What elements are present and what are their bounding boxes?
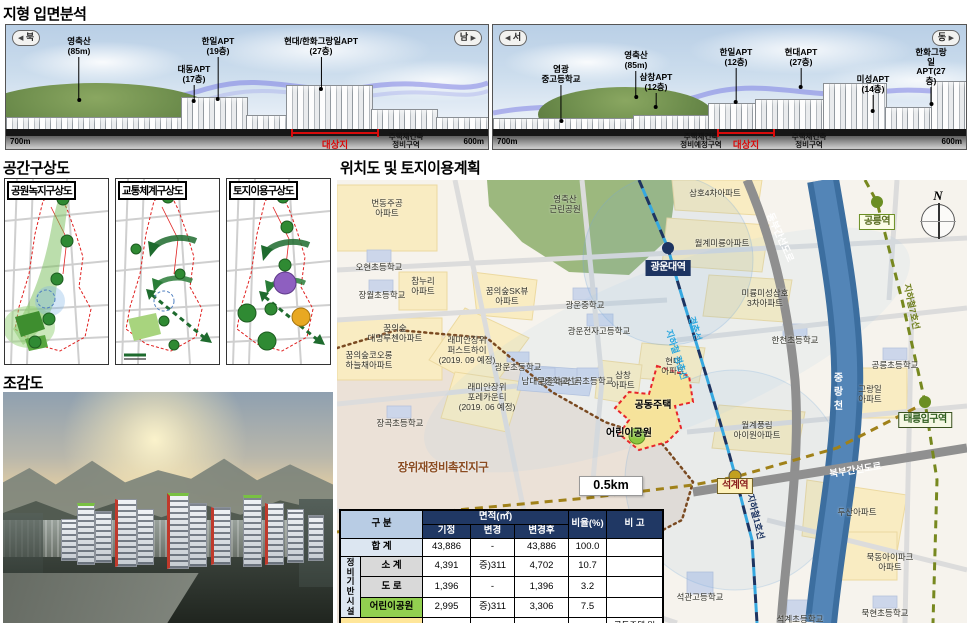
cell	[607, 577, 663, 598]
birdseye-render	[3, 392, 333, 623]
elevation-panel-north-south: ◀ 북 남 ▶ 영축산 (85m) 대동APT (17층) 한일APT (19층…	[5, 24, 489, 150]
cell: -	[471, 577, 515, 598]
cell	[607, 597, 663, 618]
map-label: 장월초등학교	[359, 290, 406, 300]
concept-map-title: 토지이용구상도	[229, 181, 298, 200]
callout-mountain: 영축산 (85m)	[67, 37, 90, 100]
compass-pill-east: 동 ▶	[932, 30, 960, 46]
park-label: 어린이공원	[606, 428, 652, 440]
dark-building	[3, 513, 43, 573]
map-label: 꿈의숲 대명루첸아파트	[368, 323, 423, 343]
concept-map-park-green: 공원녹지구상도	[4, 178, 109, 365]
building-row	[885, 107, 933, 130]
map-label: 번동주공 아파트	[371, 198, 402, 218]
map-label: 장곡초등학교	[377, 418, 424, 428]
concept-map-title: 교통체계구상도	[118, 181, 187, 200]
site-label: 대상지	[322, 137, 348, 150]
building-row	[755, 99, 825, 130]
zone-label: 주택재건축 정비구역	[389, 133, 424, 150]
site-label: 공동주택	[635, 400, 672, 412]
site-bracket	[717, 132, 775, 134]
arrow-right-icon: ▶	[949, 35, 954, 42]
callout-apartment: 현대APT (27층)	[785, 48, 818, 87]
map-label: 삼창 아파트	[611, 370, 634, 390]
apartment-tower	[77, 503, 95, 565]
apartment-tower	[287, 509, 304, 563]
station-badge-gongneung: 공릉역	[859, 214, 895, 230]
station-badge-taereung: 태릉입구역	[898, 412, 952, 428]
concept-map-landuse: 토지이용구상도	[226, 178, 331, 365]
direction-label: 동	[938, 32, 946, 42]
concept-map-graphic	[227, 179, 330, 364]
map-label: 오현초등학교	[356, 262, 403, 272]
cell: 4,702	[515, 556, 569, 577]
compass-pill-west: ◀ 서	[499, 30, 527, 46]
concept-section-title: 공간구상도	[3, 157, 70, 178]
table-header-ratio: 비율(%)	[569, 511, 607, 539]
map-label: 미륭미성삼호 3차아파트	[742, 288, 789, 308]
cell: 43,886	[515, 538, 569, 556]
foreground-road	[3, 573, 199, 623]
map-label: 꿈의숲SK뷰 아파트	[486, 286, 529, 306]
table-subheader: 기정	[423, 524, 471, 538]
table-row-road: 도 로 1,396 - 1,396 3.2	[341, 577, 663, 598]
map-label: 꿈의숲코오롱 하늘채아파트	[346, 350, 393, 370]
cell: 10.7	[569, 556, 607, 577]
compass-rose: N	[919, 188, 957, 234]
cell: 2,995	[423, 597, 471, 618]
map-label: 삼호4차아파트	[689, 188, 741, 198]
building-row	[286, 85, 373, 130]
direction-label: 서	[513, 32, 521, 42]
table-header-category: 구 분	[341, 511, 423, 539]
map-label: 묵현초등학교	[862, 608, 909, 618]
cell: 3.2	[569, 577, 607, 598]
station-badge-gwangwoondae: 광운대역	[646, 260, 691, 276]
cell: 공동주택 및 부대복리시설	[607, 618, 663, 623]
compass-pill-south: 남 ▶	[454, 30, 482, 46]
row-label: 획지	[341, 618, 423, 623]
map-label: 참누리 아파트	[411, 276, 434, 296]
map-label: 석관고등학교	[677, 592, 724, 602]
building-row	[708, 103, 757, 130]
table-row-childrens-park: 어린이공원 2,995 증)311 3,306 7.5	[341, 597, 663, 618]
map-label: 광운중학교	[565, 300, 604, 310]
terrain-section-title: 지형 입면분석	[3, 3, 86, 24]
scale-label-left: 700m	[497, 137, 517, 146]
river-label: 중랑천	[829, 372, 844, 414]
table-header-area: 면적(㎡)	[423, 511, 569, 525]
compass-ring	[921, 204, 955, 238]
map-label: 영축산 근린공원	[549, 194, 580, 214]
scale-label-left: 700m	[10, 137, 30, 146]
direction-label: 북	[26, 32, 34, 42]
table-row-lot: 획지 39,495 감)311 39,184 89.3 공동주택 및 부대복리시…	[341, 618, 663, 623]
cell: 39,184	[515, 618, 569, 623]
map-label: 그랑일 아파트	[858, 384, 881, 404]
station-badge-seokgye: 석계역	[717, 478, 753, 494]
apartment-tower	[167, 493, 189, 569]
callout-apartment: 한일APT (19층)	[202, 37, 235, 99]
map-label: 공릉초등학교	[872, 360, 919, 370]
apartment-tower	[115, 499, 137, 567]
direction-label: 남	[460, 32, 468, 42]
district-label: 장위재정비촉진지구	[398, 462, 489, 476]
cell	[607, 556, 663, 577]
birdseye-section-title: 조감도	[3, 372, 43, 393]
table-subheader: 변경	[471, 524, 515, 538]
location-map: 번동주공 아파트 영축산 근린공원 삼호4차아파트 월계미룡아파트 오현초등학교…	[337, 180, 967, 623]
arrow-left-icon: ◀	[505, 35, 510, 42]
map-label: 선곡초등학교	[567, 376, 614, 386]
map-label: 광운전자고등학교	[568, 326, 631, 336]
location-section-title: 위치도 및 토지이용계획	[340, 157, 480, 178]
cell: 4,391	[423, 556, 471, 577]
apartment-tower	[61, 519, 77, 561]
ground-scale-band	[493, 136, 966, 149]
callout-apartment: 한화그랑일 APT(27층)	[914, 48, 949, 104]
cell: 증)311	[471, 597, 515, 618]
plan-sheet: 지형 입면분석 공간구상도 위치도 및 토지이용계획 조감도 ◀ 북 남 ▶ 영…	[0, 0, 970, 625]
row-label: 도 로	[361, 577, 423, 598]
cell: 7.5	[569, 597, 607, 618]
row-label: 어린이공원	[361, 597, 423, 618]
concept-map-title: 공원녹지구상도	[7, 181, 76, 200]
building-row	[371, 109, 438, 130]
group-label: 정비 기반 시설	[341, 556, 361, 618]
cell: 89.3	[569, 618, 607, 623]
land-use-table: 구 분 면적(㎡) 비율(%) 비 고 기정 변경 변경후 합 계 43,886…	[340, 510, 663, 623]
concept-map-traffic: 교통체계구상도	[115, 178, 220, 365]
cell: -	[471, 538, 515, 556]
table-header-note: 비 고	[607, 511, 663, 539]
scale-label-right: 600m	[942, 137, 962, 146]
map-label: 래미안장위 퍼스트하이 (2019. 09 예정)	[439, 335, 496, 366]
map-label: 래미안장위 포레카운티 (2019. 06 예정)	[459, 382, 516, 413]
callout-apartment: 현대/한화그랑일APT (27층)	[284, 37, 358, 89]
elevation-panel-west-east: ◀ 서 동 ▶ 영축산 (85m) 염광 중고등학교 삼창APT (12층) 한…	[492, 24, 967, 150]
compass-n-label: N	[919, 188, 957, 204]
map-label: 묵동아이파크 아파트	[867, 552, 914, 572]
cell: 1,396	[423, 577, 471, 598]
concept-map-graphic	[116, 179, 219, 364]
cell: 감)311	[471, 618, 515, 623]
apartment-tower	[137, 509, 154, 565]
cell: 3,306	[515, 597, 569, 618]
cell: 1,396	[515, 577, 569, 598]
apartment-tower	[243, 495, 262, 567]
cell: 증)311	[471, 556, 515, 577]
cell: 43,886	[423, 538, 471, 556]
table-subheader: 변경후	[515, 524, 569, 538]
callout-apartment: 한일APT (12층)	[720, 48, 753, 102]
map-label: 월계풍림 아이원아파트	[734, 420, 781, 440]
map-label: 두산아파트	[837, 507, 876, 517]
cell: 39,495	[423, 618, 471, 623]
cell: 100.0	[569, 538, 607, 556]
map-label: 한천초등학교	[772, 335, 819, 345]
cell	[607, 538, 663, 556]
row-label: 소 계	[361, 556, 423, 577]
apartment-tower	[308, 515, 324, 561]
row-label: 합 계	[341, 538, 423, 556]
arrow-left-icon: ◀	[18, 35, 23, 42]
apartment-tower	[265, 503, 284, 565]
building-row	[246, 115, 288, 130]
map-label: 월계미룡아파트	[695, 238, 750, 248]
apartment-tower	[189, 503, 207, 567]
table-row-total: 합 계 43,886 - 43,886 100.0	[341, 538, 663, 556]
building-row	[633, 115, 710, 130]
callout-school: 염광 중고등학교	[541, 65, 580, 121]
compass-pill-north: ◀ 북	[12, 30, 40, 46]
apartment-tower	[211, 507, 231, 565]
table-row-subtotal: 정비 기반 시설 소 계 4,391 증)311 4,702 10.7	[341, 556, 663, 577]
map-label: 석계초등학교	[777, 614, 824, 623]
callout-apartment: 삼창APT (12층)	[640, 73, 673, 107]
zone-label: 주택재건축 정비구역	[792, 133, 827, 150]
apartment-tower	[95, 511, 112, 563]
zone-label: 주택재건축 정비예정구역	[680, 133, 721, 150]
map-label: 남대문중학교	[522, 376, 569, 386]
callout-apartment: 미성APT (14층)	[857, 75, 890, 111]
scale-indicator: 0.5km	[579, 476, 643, 496]
scale-label-right: 600m	[464, 137, 484, 146]
concept-map-graphic	[5, 179, 108, 364]
arrow-right-icon: ▶	[471, 35, 476, 42]
site-label: 대상지	[733, 137, 759, 150]
site-bracket	[291, 132, 379, 134]
map-label: 광운초등학교	[495, 362, 542, 372]
